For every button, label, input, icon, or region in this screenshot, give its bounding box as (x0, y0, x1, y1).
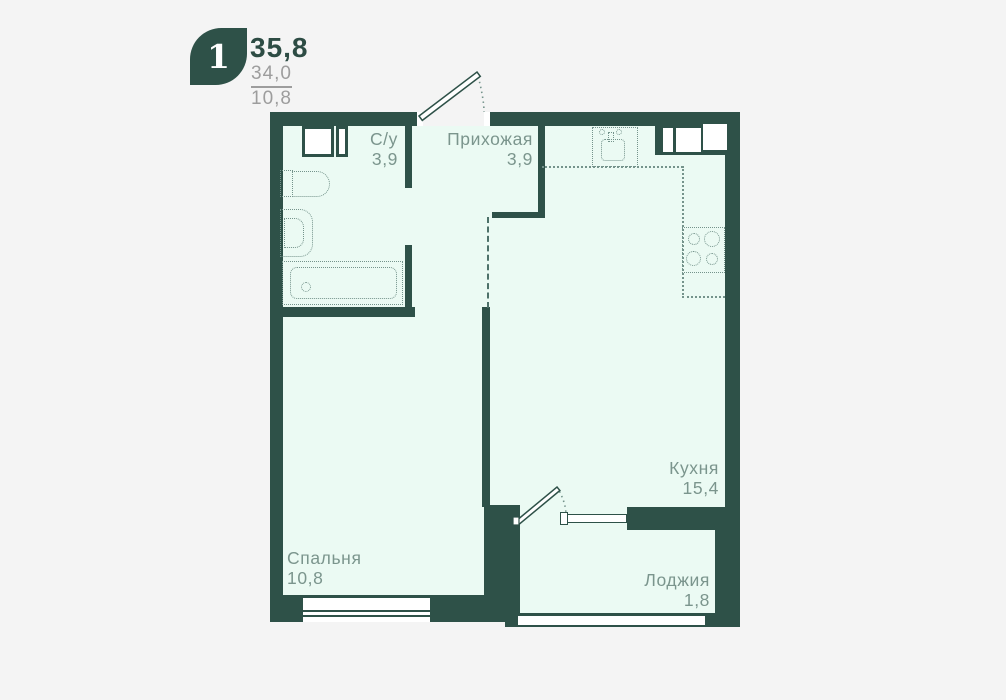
wall-hallway-right (538, 112, 545, 218)
balcony-door-leaf (516, 487, 560, 525)
hallway-name: Прихожая (447, 129, 533, 149)
kitchen-sink-basin (601, 139, 625, 161)
bedroom-window-line-2 (303, 615, 430, 617)
tertiary-area: 10,8 (251, 89, 292, 108)
entrance-door-leaf (419, 72, 480, 120)
loggia-area: 1,8 (644, 590, 710, 610)
wall-bathroom-right-lower (405, 245, 412, 307)
room-count-leaf-badge: 1 (190, 28, 247, 85)
counter-line-bottom (682, 296, 725, 298)
toilet-bowl-fixture (292, 171, 330, 197)
total-area: 35,8 (250, 32, 309, 64)
loggia-window (518, 616, 705, 625)
hallway-label: Прихожая 3,9 (447, 129, 533, 169)
bedroom-name: Спальня (287, 548, 362, 568)
loggia-name: Лоджия (644, 570, 710, 590)
wall-right (725, 112, 740, 627)
bathroom-sink-basin (284, 218, 304, 248)
vent-box-2 (676, 128, 701, 152)
room-count: 1 (207, 40, 230, 73)
kitchen-sink-tap-2 (616, 129, 622, 135)
stove-burner-3 (686, 251, 701, 266)
bathroom-shaft-box-2 (336, 126, 348, 157)
bathroom-name: С/у (370, 129, 398, 149)
bathroom-label: С/у 3,9 (370, 129, 398, 169)
bathtub-faucet (301, 282, 311, 292)
wall-top-left-segment (270, 112, 417, 126)
vent-box-3 (703, 124, 727, 150)
entrance-door (408, 58, 498, 130)
bedroom-area: 10,8 (287, 568, 362, 588)
stove-burner-4 (706, 253, 718, 265)
bedroom-window-line-1 (303, 610, 430, 612)
kitchen-label: Кухня 15,4 (669, 458, 719, 498)
secondary-area: 34,0 (251, 64, 292, 88)
wall-bathroom-bedroom (283, 307, 415, 317)
wall-kitchen-loggia (627, 507, 725, 530)
wall-hallway-stub (492, 212, 545, 218)
loggia-label: Лоджия 1,8 (644, 570, 710, 610)
hallway-area: 3,9 (447, 149, 533, 169)
balcony-door-hinge (513, 517, 519, 525)
kitchen-sink-tap-3 (608, 132, 614, 142)
wall-bathroom-right-upper (405, 126, 412, 188)
stove-burner-1 (688, 233, 700, 245)
hallway-kitchen-open-boundary (487, 217, 489, 308)
kitchen-name: Кухня (669, 458, 719, 478)
stove-burner-2 (704, 231, 720, 247)
kitchen-sink-tap-1 (599, 129, 605, 135)
floorplan-page: { "legend": { "room_count": "1", "total_… (0, 0, 1006, 700)
bedroom-label: Спальня 10,8 (287, 548, 362, 588)
vent-box-1 (663, 128, 673, 152)
bathroom-shaft-box-1 (302, 126, 334, 157)
balcony-door (505, 478, 575, 526)
kitchen-area: 15,4 (669, 478, 719, 498)
bathroom-area: 3,9 (370, 149, 398, 169)
wall-bedroom-right (482, 307, 490, 507)
